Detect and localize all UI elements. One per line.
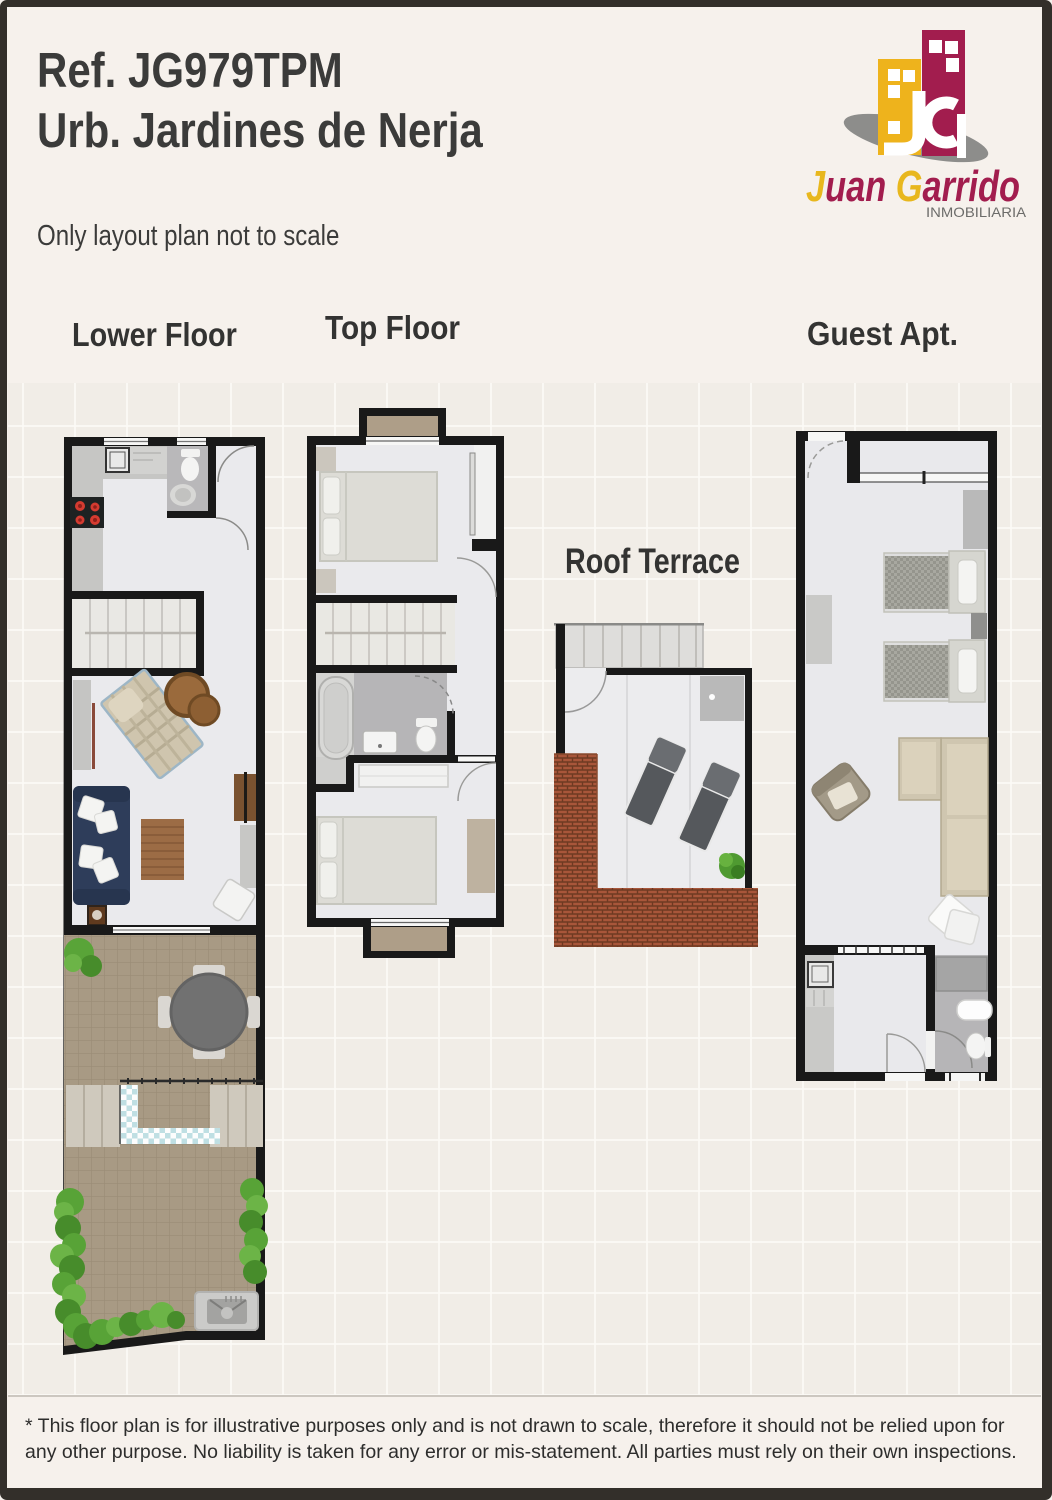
svg-text:INMOBILIARIA: INMOBILIARIA — [926, 204, 1027, 220]
